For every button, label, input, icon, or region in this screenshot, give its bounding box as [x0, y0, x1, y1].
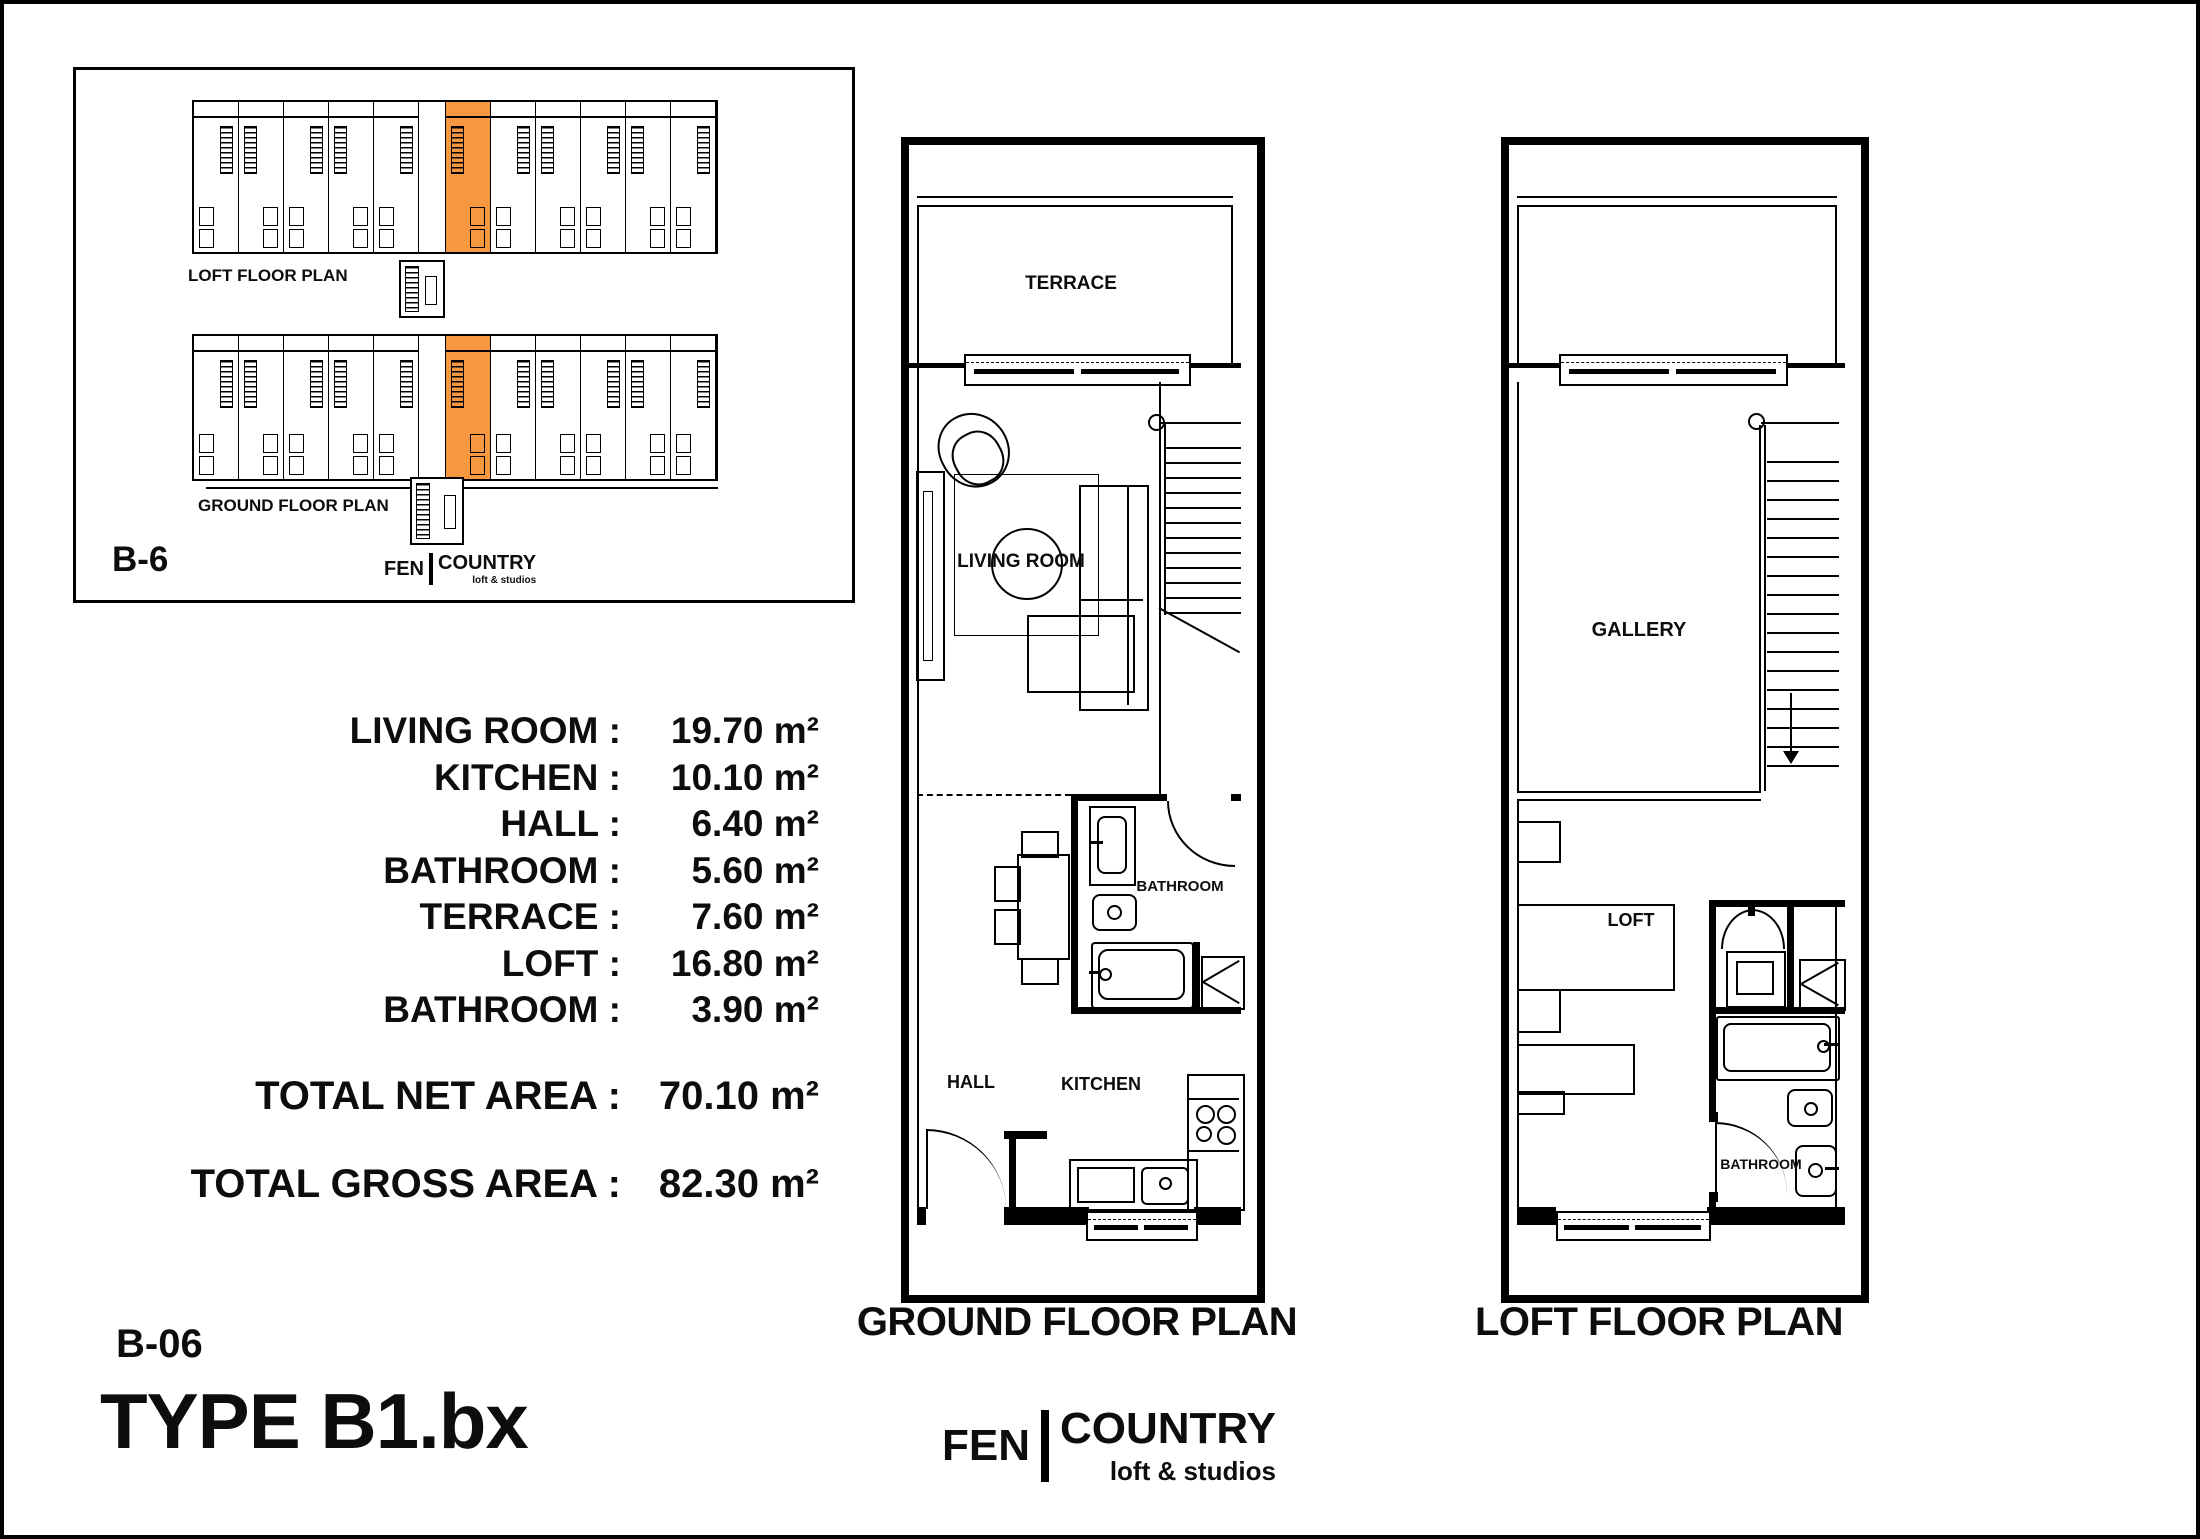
bathtub-inner — [1723, 1023, 1831, 1072]
overview-unit — [581, 102, 626, 252]
gallery-overhead-dashed — [917, 794, 1071, 796]
wall-line — [1517, 196, 1837, 207]
ground-floor-plan: TERRACE LIVING ROOM BATHROOM — [901, 137, 1265, 1303]
wall-line — [1517, 207, 1519, 363]
overview-unit — [239, 102, 284, 252]
overview-ground-strip — [192, 334, 718, 481]
area-row: LIVING ROOM19.70 m² — [154, 710, 819, 757]
overview-unit — [284, 102, 329, 252]
overview-brand-logo: FEN COUNTRY loft & studios — [384, 552, 536, 586]
overview-unit — [284, 336, 329, 479]
cabinet — [1077, 1167, 1135, 1203]
entrance-door-arc — [926, 1129, 1006, 1209]
area-table: LIVING ROOM19.70 m² KITCHEN10.10 m² HALL… — [154, 710, 819, 1210]
wall-line — [1231, 794, 1241, 801]
bath-tap-line — [1824, 1043, 1838, 1046]
rear-window — [1086, 1211, 1198, 1241]
area-row: TERRACE7.60 m² — [154, 896, 819, 943]
area-label: HALL — [154, 803, 621, 845]
wall-line — [1231, 207, 1233, 363]
brand-country: COUNTRY — [438, 552, 536, 575]
counter-divider — [1189, 1150, 1239, 1152]
kitchen-column — [1187, 1074, 1245, 1211]
bathroom-door-arc — [1167, 801, 1235, 867]
counter-divider — [1189, 1098, 1239, 1100]
overview-loft-caption: LOFT FLOOR PLAN — [188, 266, 348, 286]
area-row: BATHROOM3.90 m² — [154, 989, 819, 1036]
area-label: LOFT — [154, 943, 621, 985]
area-value: 10.10 m² — [621, 757, 819, 799]
area-value: 19.70 m² — [621, 710, 819, 752]
brand-country: COUNTRY — [1060, 1404, 1276, 1454]
tv-unit — [916, 471, 945, 681]
overview-unit — [671, 336, 716, 479]
bathtub — [1091, 942, 1194, 1009]
bedside-table — [1517, 989, 1561, 1033]
loft-label: LOFT — [1608, 910, 1655, 931]
gallery-railing — [1517, 791, 1761, 801]
brand-divider — [429, 553, 433, 585]
bathtub — [1716, 1016, 1840, 1081]
low-cabinet — [1517, 1091, 1565, 1115]
overview-unit — [239, 336, 284, 479]
overview-unit — [194, 102, 239, 252]
sink-basin — [1097, 816, 1127, 874]
area-row: HALL6.40 m² — [154, 803, 819, 850]
tv-panel — [923, 491, 933, 661]
kitchen-label: KITCHEN — [1061, 1074, 1141, 1095]
brand-fen: FEN — [942, 1421, 1030, 1471]
overview-unit — [491, 336, 536, 479]
sliding-window — [964, 354, 1191, 386]
stair-wall — [1159, 382, 1161, 794]
brand-tagline: loft & studios — [472, 575, 536, 586]
overview-box: LOFT FLOOR PLAN GROUND FLOOR PLAN B-6 FE… — [73, 67, 855, 603]
stair-core-icon — [410, 477, 464, 545]
wall-line — [1071, 794, 1167, 801]
wall-line — [1193, 942, 1200, 1007]
stair-arrow-line — [1790, 693, 1792, 751]
washing-machine — [1726, 951, 1786, 1008]
gallery-railing-side — [1764, 425, 1766, 791]
overview-loft-strip — [192, 100, 718, 254]
wall-line — [1787, 900, 1794, 1009]
overview-unit — [536, 102, 581, 252]
area-value: 5.60 m² — [621, 850, 819, 892]
overview-ground-caption: GROUND FLOOR PLAN — [198, 496, 389, 516]
dining-table — [1017, 854, 1070, 960]
loft-plan-caption: LOFT FLOOR PLAN — [1475, 1300, 1843, 1345]
overview-unit — [374, 336, 419, 479]
area-label: BATHROOM — [154, 850, 621, 892]
stove-burner — [1196, 1105, 1215, 1124]
kitchen-counter — [1069, 1159, 1198, 1211]
total-label: TOTAL GROSS AREA — [154, 1162, 621, 1207]
door-post — [1709, 1112, 1718, 1122]
area-value: 16.80 m² — [621, 943, 819, 985]
stove-burner — [1217, 1126, 1236, 1145]
dining-chair — [994, 866, 1021, 902]
sink-drain — [1804, 1102, 1818, 1116]
area-value: 7.60 m² — [621, 896, 819, 938]
sink-drain — [1159, 1177, 1172, 1190]
ground-plan-caption: GROUND FLOOR PLAN — [857, 1300, 1297, 1345]
overview-unit-highlighted — [445, 336, 491, 479]
wall-line — [1071, 794, 1078, 1014]
stair-rail — [1161, 422, 1241, 424]
total-net-row: TOTAL NET AREA70.10 m² — [154, 1074, 819, 1122]
sliding-window — [1559, 354, 1788, 386]
dining-chair — [1021, 958, 1059, 985]
overview-unit — [671, 102, 716, 252]
overview-unit — [194, 336, 239, 479]
terrace-label: TERRACE — [1025, 273, 1117, 295]
wall-line — [1707, 1207, 1845, 1225]
stair-rail — [1761, 422, 1839, 424]
area-row: LOFT16.80 m² — [154, 943, 819, 990]
living-room-label: LIVING ROOM — [957, 551, 1085, 573]
bath-tap — [1099, 968, 1112, 981]
type-title: TYPE B1.bx — [100, 1376, 528, 1467]
stove-burner — [1217, 1105, 1236, 1124]
total-gross-row: TOTAL GROSS AREA82.30 m² — [154, 1162, 819, 1210]
wall-line — [1835, 207, 1837, 363]
stair-treads — [1767, 461, 1839, 773]
toilet-tap-line — [1825, 1167, 1839, 1170]
wall-line — [917, 1207, 926, 1225]
area-label: TERRACE — [154, 896, 621, 938]
page-frame: LOFT FLOOR PLAN GROUND FLOOR PLAN B-6 FE… — [0, 0, 2200, 1539]
wall-line — [1194, 1207, 1241, 1225]
footer-brand-logo: FEN COUNTRY loft & studios — [942, 1404, 1276, 1487]
area-label: LIVING ROOM — [154, 710, 621, 752]
loft-floor-plan: GALLERY LOFT BATHROOM — [1501, 137, 1869, 1303]
sofa-chaise — [1027, 615, 1135, 693]
sink-counter — [1089, 806, 1136, 886]
gallery-label: GALLERY — [1592, 619, 1687, 642]
brand-divider — [1041, 1410, 1049, 1482]
bath-tap — [1817, 1040, 1830, 1053]
area-value: 3.90 m² — [621, 989, 819, 1031]
wall-line — [1709, 900, 1845, 907]
wall-line — [917, 196, 1233, 207]
unit-code: B-06 — [116, 1322, 203, 1367]
gallery-railing-side — [1759, 425, 1761, 791]
stair-core-icon — [399, 260, 445, 318]
wall-line — [1517, 1207, 1556, 1225]
bathroom-label: BATHROOM — [1136, 878, 1223, 895]
hall-label: HALL — [947, 1072, 995, 1093]
wardrobe-door-arc — [1752, 909, 1785, 949]
wall-line — [909, 363, 964, 368]
brand-tagline: loft & studios — [1110, 1456, 1276, 1487]
overview-unit — [491, 102, 536, 252]
area-row: KITCHEN10.10 m² — [154, 757, 819, 804]
wall-line — [1004, 1207, 1089, 1225]
rear-window — [1556, 1211, 1711, 1241]
hall-wall — [1009, 1131, 1016, 1207]
stair-down-arrow — [1783, 751, 1799, 764]
washer-drum — [1736, 961, 1774, 995]
total-label: TOTAL NET AREA — [154, 1074, 621, 1119]
sink-basin — [1787, 1089, 1833, 1127]
stair-treads — [1166, 447, 1241, 615]
overview-unit — [329, 336, 374, 479]
area-row: BATHROOM5.60 m² — [154, 850, 819, 897]
wall-line — [1187, 363, 1241, 368]
wall-line — [1784, 363, 1845, 368]
area-value: 6.40 m² — [621, 803, 819, 845]
wall-line — [1517, 382, 1519, 791]
area-label: BATHROOM — [154, 989, 621, 1031]
closet — [1517, 821, 1561, 863]
total-value: 82.30 m² — [621, 1162, 819, 1207]
toilet-flush — [1808, 1163, 1823, 1178]
wall-line — [1509, 363, 1559, 368]
overview-unit — [329, 102, 374, 252]
area-label: KITCHEN — [154, 757, 621, 799]
sink-tap — [1089, 841, 1103, 844]
brand-fen: FEN — [384, 558, 424, 581]
overview-ref: B-6 — [112, 540, 168, 580]
sofa-seam — [1081, 599, 1143, 601]
overview-unit — [536, 336, 581, 479]
overview-unit — [626, 102, 671, 252]
bathroom-door-arc — [1715, 1122, 1787, 1194]
toilet-flush — [1107, 905, 1122, 920]
wall-line — [917, 207, 919, 1207]
desk — [1517, 1044, 1635, 1095]
overview-unit — [581, 336, 626, 479]
toilet — [1092, 894, 1137, 931]
dining-chair — [994, 909, 1021, 945]
bath-tap-line — [1089, 971, 1101, 974]
stove-burner — [1196, 1126, 1212, 1142]
overview-unit-highlighted — [445, 102, 491, 252]
overview-unit — [374, 102, 419, 252]
wardrobe-post — [1748, 907, 1755, 916]
overview-unit — [626, 336, 671, 479]
total-value: 70.10 m² — [621, 1074, 819, 1119]
